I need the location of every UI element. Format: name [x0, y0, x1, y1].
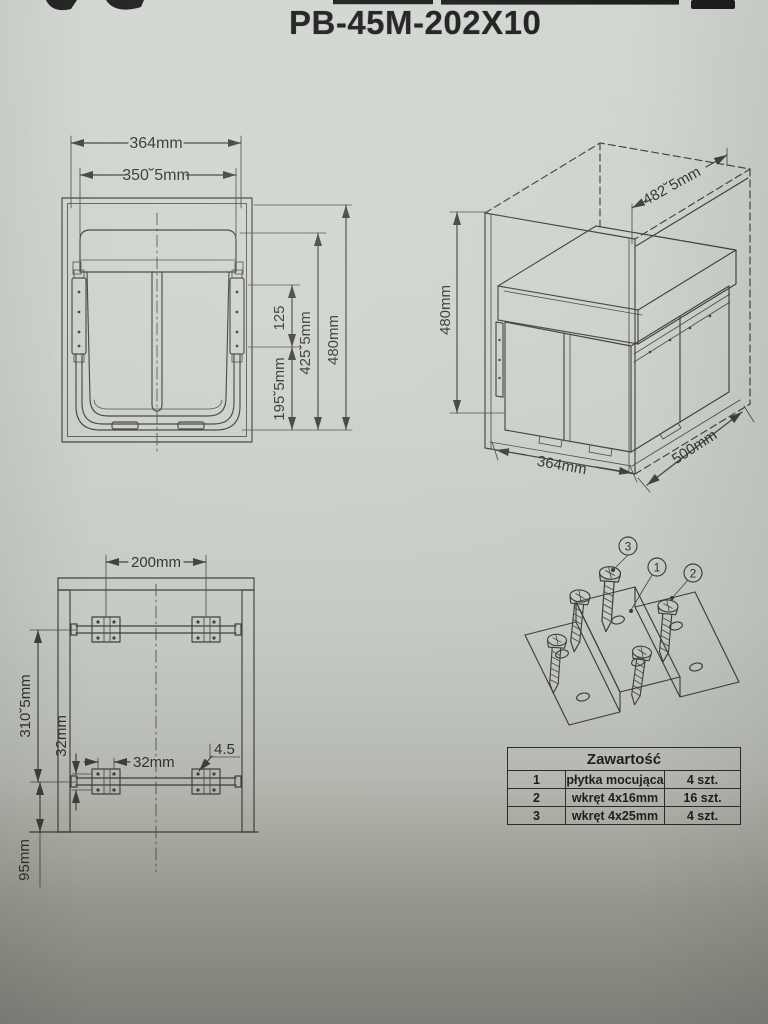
dim-label-width-outer: 364mm	[129, 135, 182, 152]
parts-table: Zawartość 1 płytka mocująca 4 szt. 2 wkr…	[507, 747, 741, 825]
part-number: 3	[508, 807, 566, 825]
iso-bin-unit	[496, 226, 736, 456]
part-number: 2	[508, 789, 566, 807]
dim-label-iso-width: 364mm	[536, 453, 588, 478]
table-row: 1 płytka mocująca 4 szt.	[508, 771, 741, 789]
dim-label-hole-diameter: 4.5	[214, 741, 235, 758]
bin-lid	[80, 230, 236, 272]
dim-label-hole-spacing-vertical: 32mm	[53, 715, 70, 757]
screw	[625, 645, 652, 706]
plate-hole	[611, 615, 625, 626]
dim-label-plate-spacing: 200mm	[131, 554, 181, 571]
cropped-letter-fragment	[106, 0, 144, 10]
dim-label-slide-height: 125	[271, 305, 288, 330]
screw-long	[595, 566, 620, 632]
table-row: 2 wkręt 4x16mm 16 szt.	[508, 789, 741, 807]
dim-label-depth-inner: 482˘5mm	[640, 163, 704, 209]
slide-rail-right	[230, 270, 244, 362]
dim-label-bottom-offset: 95mm	[16, 839, 33, 881]
parts-table-header-row: Zawartość	[508, 748, 741, 771]
callout-number-1: 1	[654, 561, 661, 575]
dim-label-width-inner: 350˘5mm	[122, 167, 190, 184]
callout-number-3: 3	[625, 540, 632, 554]
cabinet-walls	[30, 578, 258, 832]
dim-label-lower-height: 195˘5mm	[271, 357, 288, 420]
iso-cabinet	[485, 143, 750, 474]
screw	[544, 634, 567, 694]
dim-label-hole-spacing-horizontal: 32mm	[133, 754, 175, 771]
dim-label-rail-spacing: 310˘5mm	[17, 674, 34, 737]
dim-label-iso-height: 480mm	[437, 285, 454, 335]
bin-body	[87, 272, 229, 416]
part-name: wkręt 4x16mm	[566, 789, 665, 807]
plate-hole	[689, 662, 703, 673]
isometric-view-drawing: 482˘5mm 480mm 364mm 500mm	[410, 110, 768, 510]
iso-wall-slide	[496, 322, 503, 397]
cropped-text-bar	[691, 0, 735, 9]
iso-lid	[498, 226, 736, 344]
iso-bin-front	[505, 322, 631, 452]
bottom-frame	[76, 354, 240, 430]
table-row: 3 wkręt 4x25mm 4 szt.	[508, 807, 741, 825]
part-number: 1	[508, 771, 566, 789]
callout-number-2: 2	[690, 567, 697, 581]
part-name: wkręt 4x25mm	[566, 807, 665, 825]
part-name: płytka mocująca	[566, 771, 665, 789]
dim-label-body-height: 425˘5mm	[297, 311, 314, 374]
spec-sheet-photo: PB-45M-202X10	[0, 0, 768, 1024]
slide-rail-left	[72, 270, 86, 362]
product-title: PB-45M-202X10	[289, 4, 541, 42]
cropped-letter-fragment	[46, 0, 77, 10]
mounting-view-drawing: 200mm 310˘5mm 32mm 32mm 4.5 95mm	[0, 540, 300, 900]
front-view-dimensions: 364mm 350˘5mm 125 195˘5mm 425˘5mm 480mm	[71, 135, 352, 430]
mounting-dimensions: 200mm 310˘5mm 32mm 32mm 4.5 95mm	[16, 554, 240, 887]
screws	[544, 566, 679, 706]
dim-label-iso-depth: 500mm	[669, 426, 720, 468]
front-view-bin	[72, 230, 244, 430]
parts-table-title: Zawartość	[508, 748, 741, 771]
part-qty: 4 szt.	[665, 807, 741, 825]
part-qty: 16 szt.	[665, 789, 741, 807]
part-qty: 4 szt.	[665, 771, 741, 789]
plate-hole	[576, 692, 590, 703]
dim-label-total-height: 480mm	[325, 315, 342, 365]
hardware-drawing: 3 1 2	[500, 530, 768, 745]
iso-bin-feet	[539, 423, 681, 456]
front-view-drawing: 364mm 350˘5mm 125 195˘5mm 425˘5mm 480mm	[0, 100, 380, 465]
